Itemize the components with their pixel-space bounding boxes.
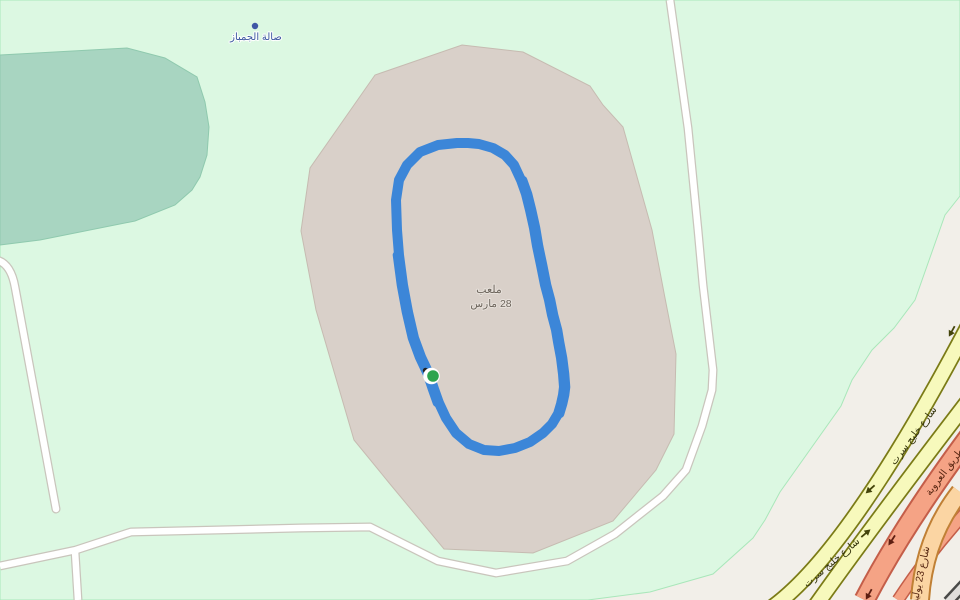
svg-text:صالة الجمباز: صالة الجمباز: [229, 32, 282, 43]
svg-text:ملعب: ملعب: [476, 284, 502, 296]
svg-text:28 مارس: 28 مارس: [470, 298, 511, 310]
